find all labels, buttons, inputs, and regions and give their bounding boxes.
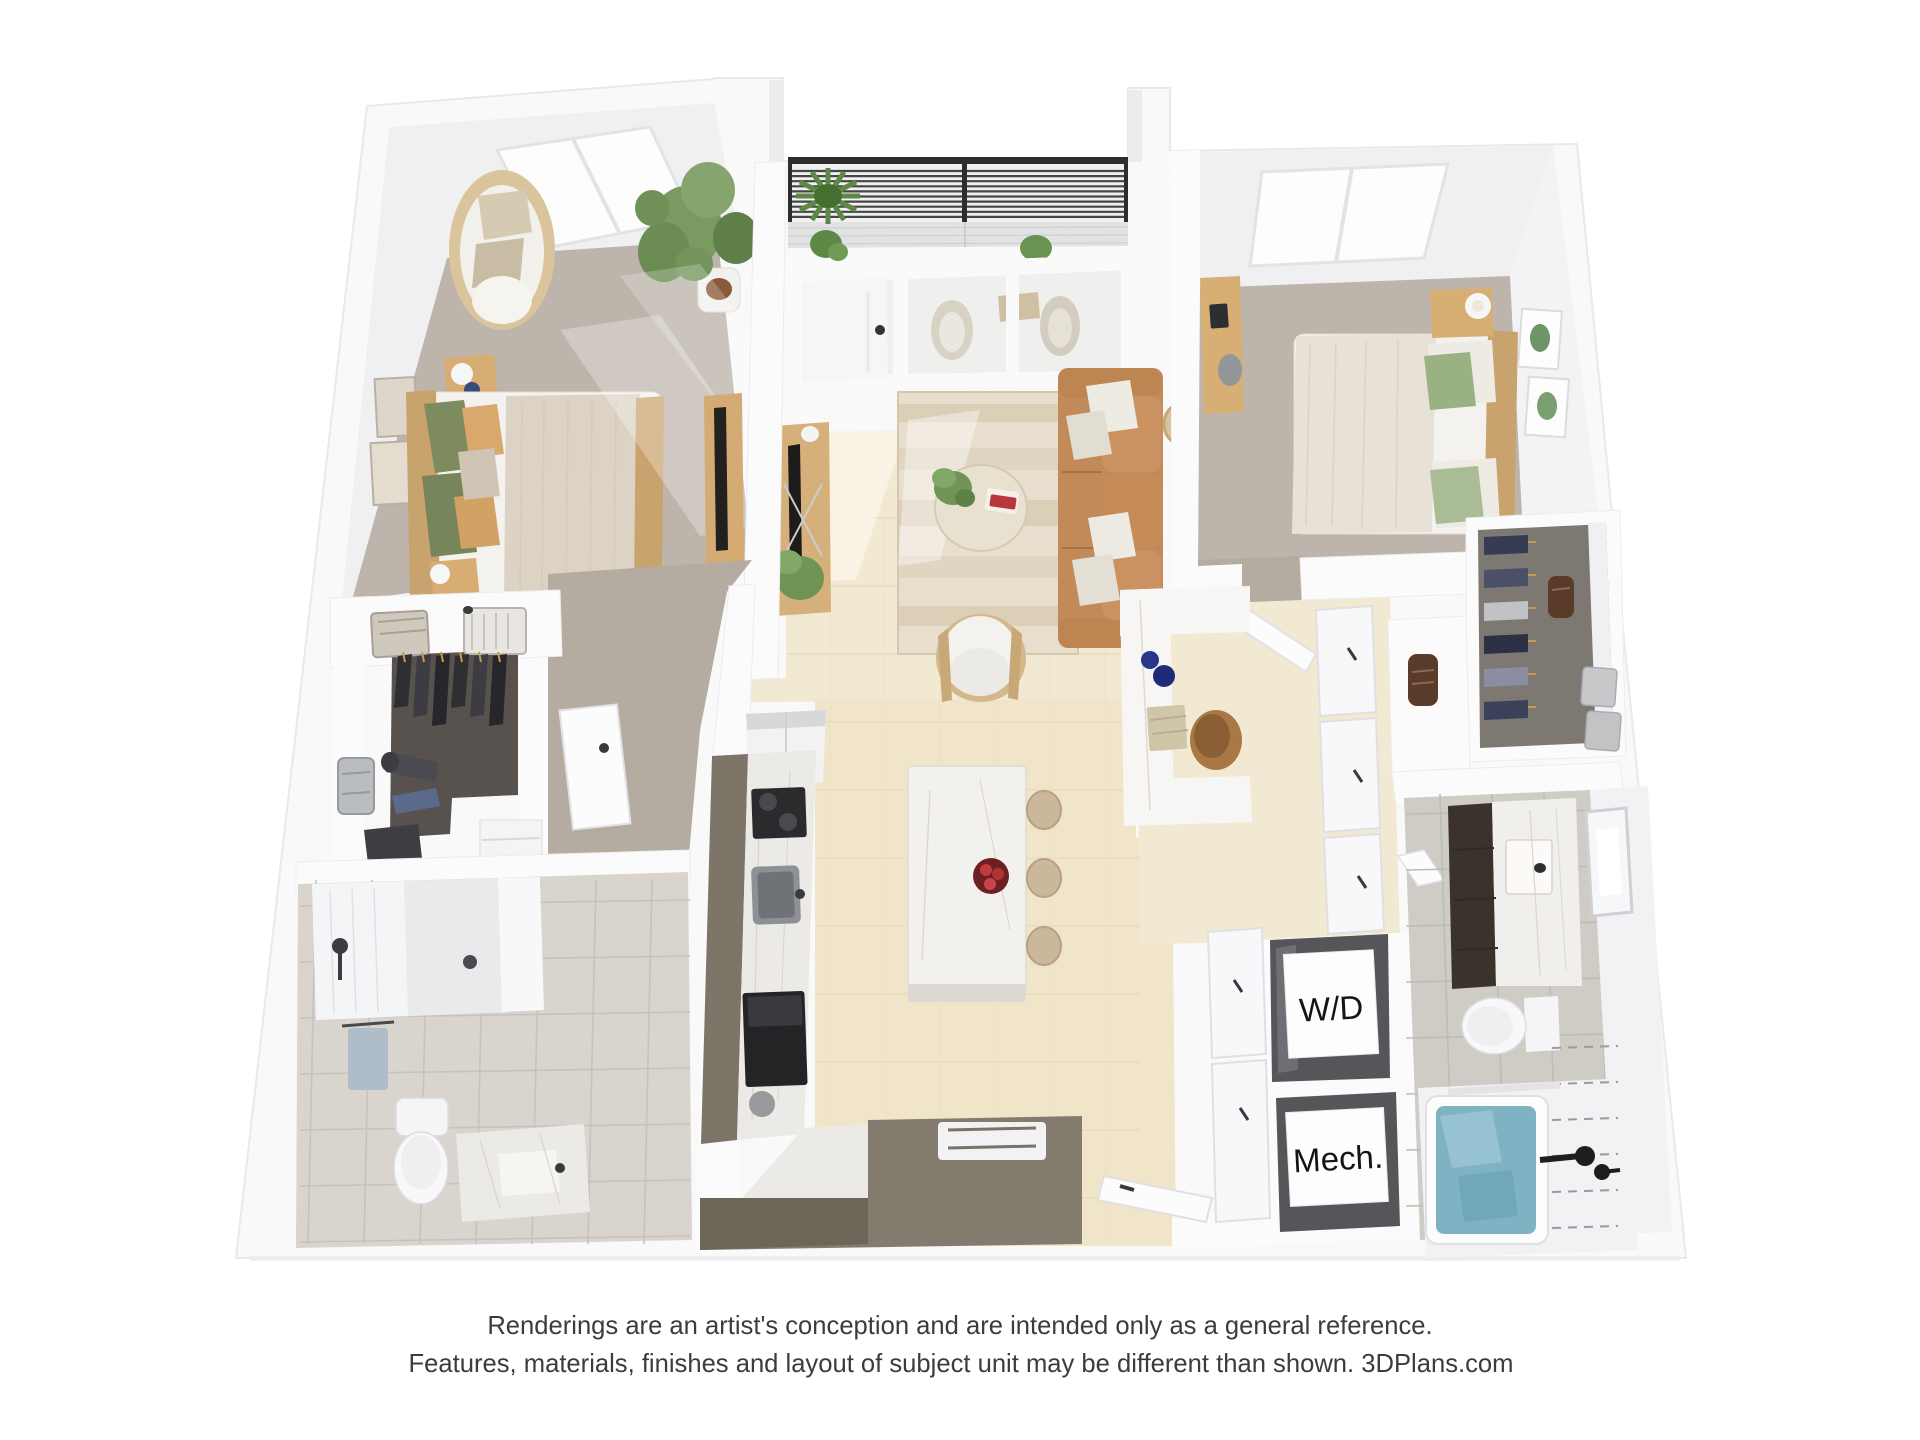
svg-text:W/D: W/D <box>1298 988 1364 1028</box>
svg-text:Mech.: Mech. <box>1292 1138 1384 1180</box>
svg-text:Features, materials, finishes: Features, materials, finishes and layout… <box>409 1350 1514 1378</box>
svg-text:Renderings are an artist's con: Renderings are an artist's conception an… <box>487 1312 1432 1340</box>
